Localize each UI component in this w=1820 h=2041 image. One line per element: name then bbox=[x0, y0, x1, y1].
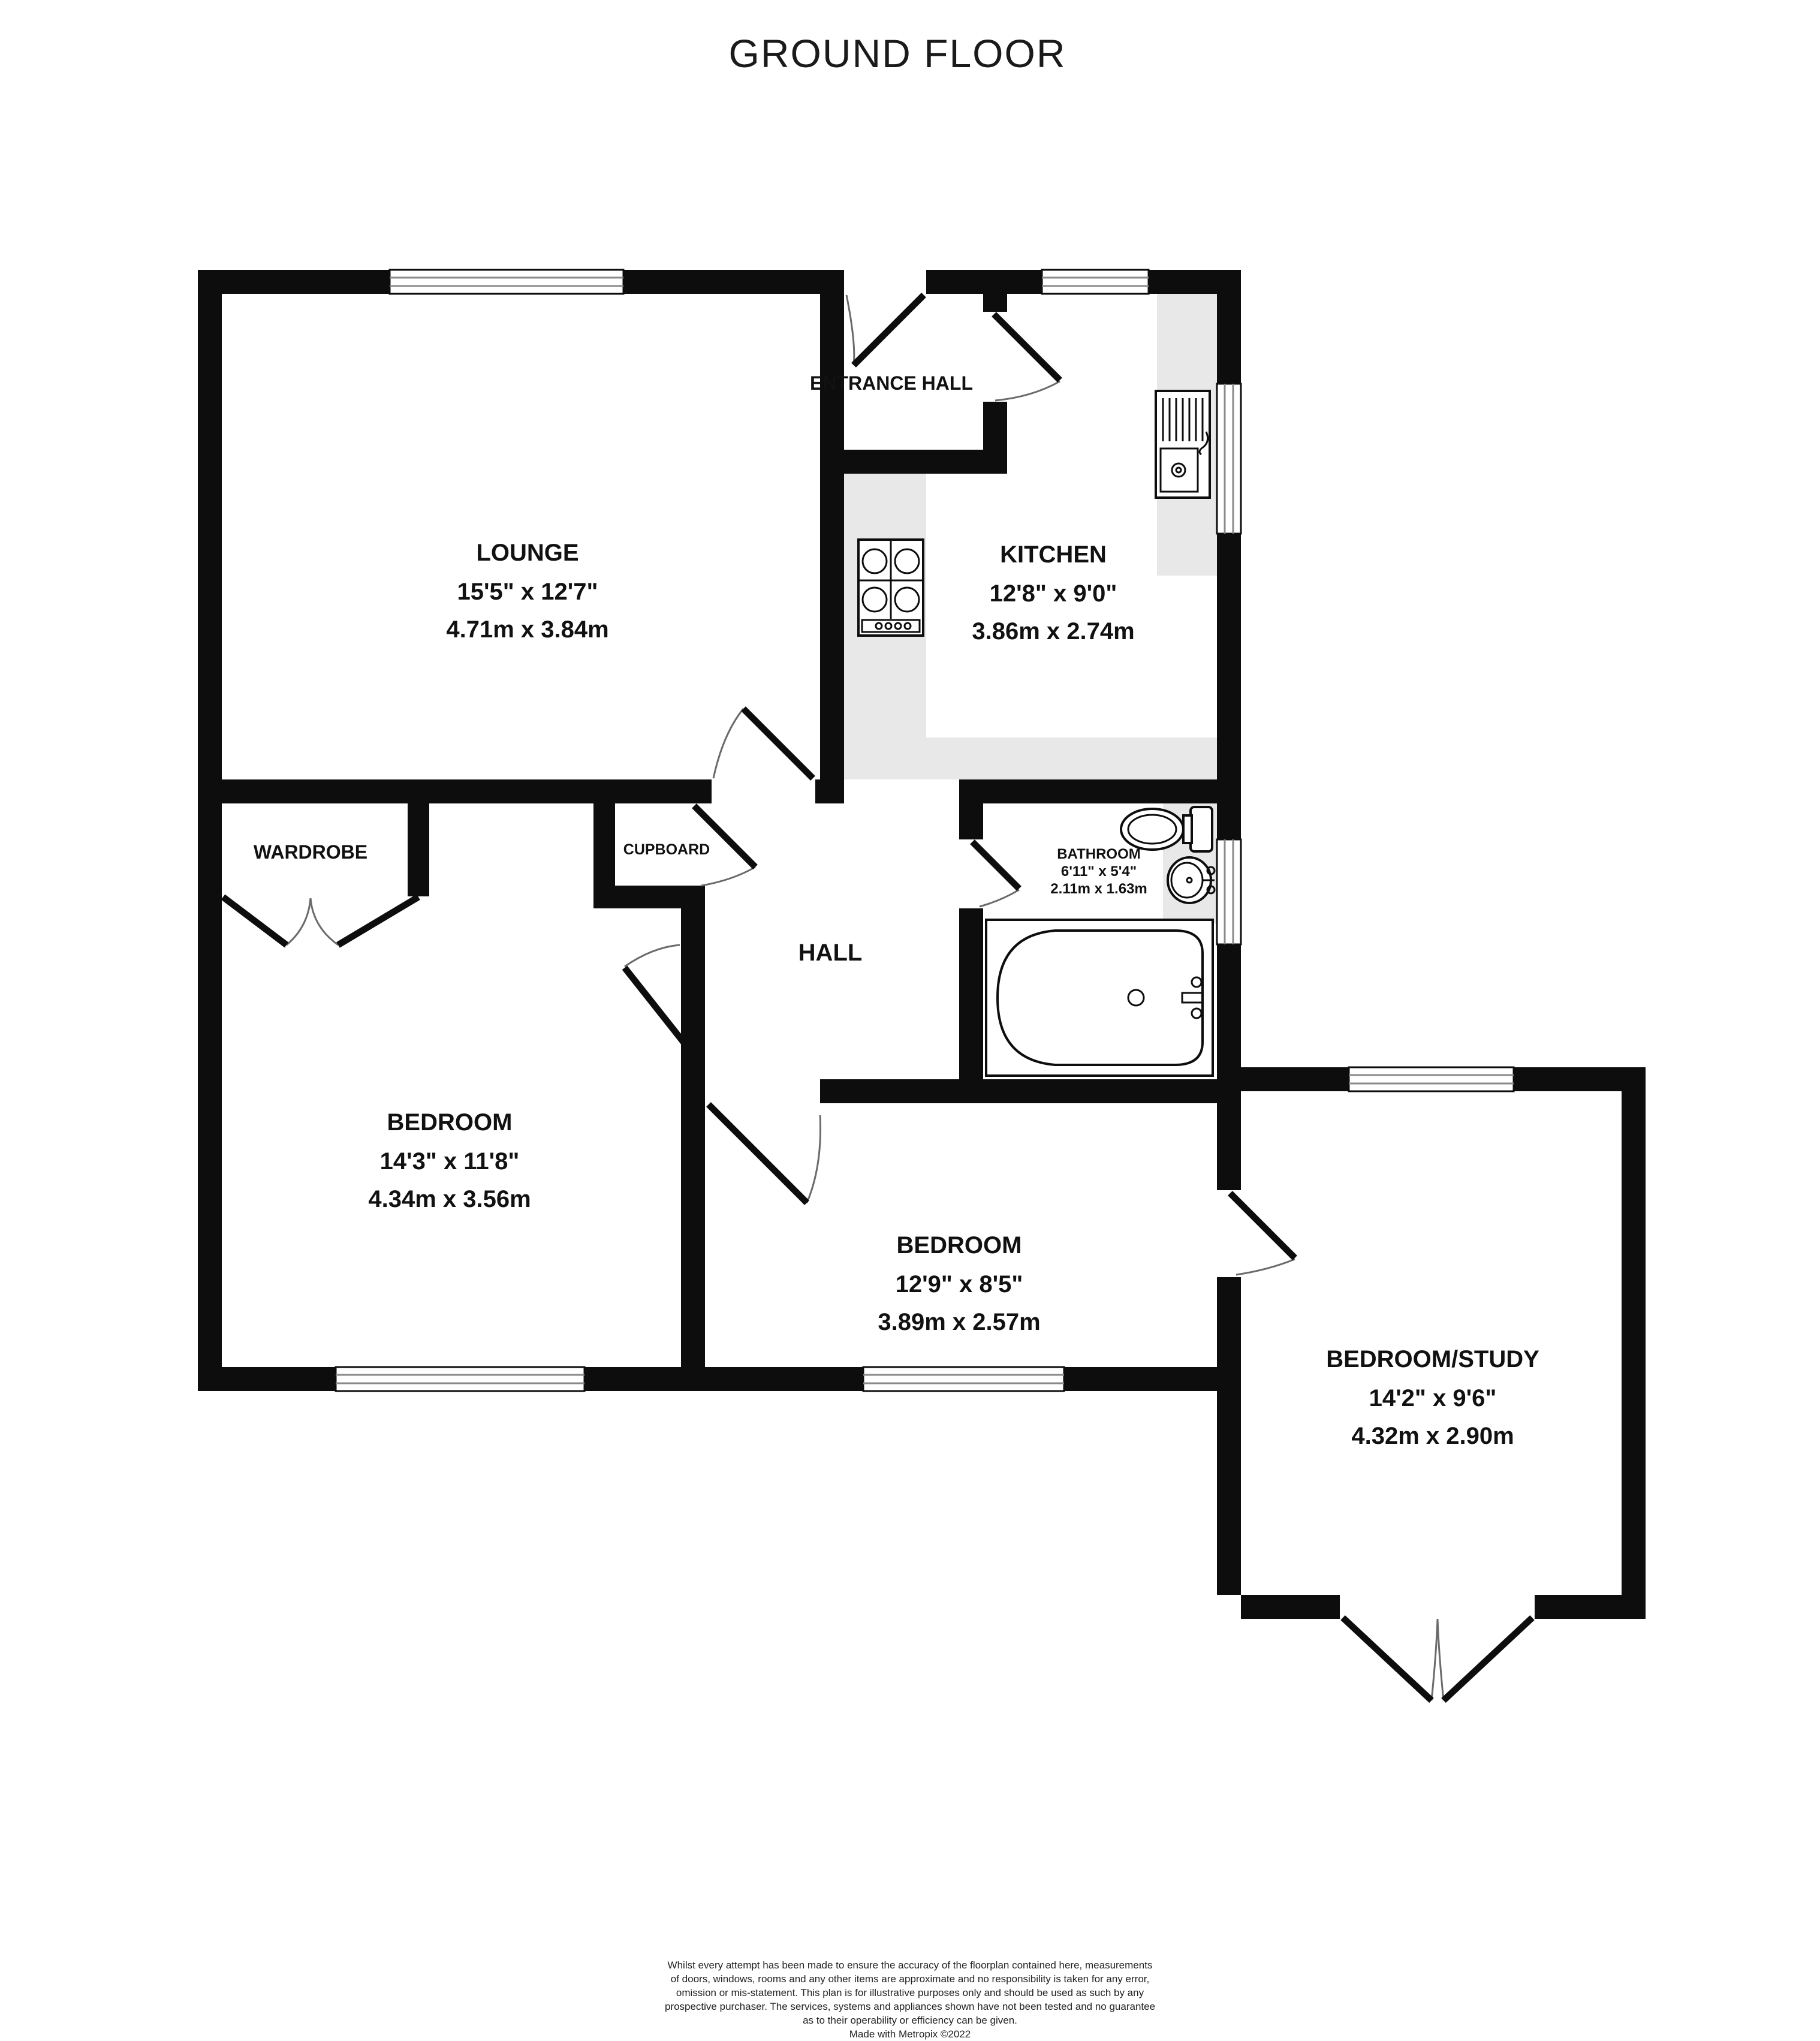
wall bbox=[959, 803, 983, 839]
wall bbox=[1217, 1391, 1241, 1595]
wall bbox=[198, 270, 390, 294]
wall bbox=[820, 1079, 1241, 1103]
kitchen-sink bbox=[1156, 391, 1210, 498]
kitchen-top-window bbox=[1042, 270, 1149, 294]
wall bbox=[681, 886, 705, 1367]
disclaimer-line: of doors, windows, rooms and any other i… bbox=[671, 1973, 1149, 1985]
kitchen-dims-metric: 3.86m x 2.74m bbox=[972, 618, 1134, 645]
wall bbox=[1217, 944, 1241, 1190]
wall bbox=[408, 779, 429, 896]
wall bbox=[959, 779, 1241, 803]
wall bbox=[815, 779, 844, 803]
bedroom2-dims-imperial: 12'9" x 8'5" bbox=[896, 1271, 1023, 1298]
wall bbox=[198, 779, 712, 803]
bedroom2-name: BEDROOM bbox=[897, 1232, 1022, 1259]
study-name: BEDROOM/STUDY bbox=[1326, 1346, 1539, 1372]
disclaimer-line: Whilst every attempt has been made to en… bbox=[668, 1959, 1153, 1971]
metropix-credit: Made with Metropix ©2022 bbox=[849, 2028, 971, 2040]
wall bbox=[820, 450, 1007, 474]
wall bbox=[959, 908, 983, 1079]
bathroom-dims-metric: 2.11m x 1.63m bbox=[1050, 881, 1147, 897]
wall bbox=[983, 402, 1007, 450]
bathroom-dims-imperial: 6'11" x 5'4" bbox=[1061, 863, 1137, 880]
study-window bbox=[1349, 1067, 1514, 1091]
bedroom1-dims-metric: 4.34m x 3.56m bbox=[368, 1186, 531, 1212]
wall bbox=[593, 886, 683, 908]
counter-bottom-strip bbox=[844, 737, 1217, 779]
bathroom-label: BATHROOM 6'11" x 5'4" 2.11m x 1.63m bbox=[1050, 846, 1147, 897]
disclaimer-line: omission or mis-statement. This plan is … bbox=[676, 1987, 1144, 1998]
cupboard-label: CUPBOARD bbox=[623, 841, 710, 858]
wall bbox=[820, 294, 844, 797]
wall bbox=[584, 1367, 863, 1391]
wall bbox=[198, 270, 222, 1391]
bedroom1-window bbox=[336, 1367, 584, 1391]
entrance-hall-label: ENTRANCE HALL bbox=[810, 372, 973, 394]
bedroom1-name: BEDROOM bbox=[387, 1109, 513, 1136]
lounge-dims-metric: 4.71m x 3.84m bbox=[446, 616, 608, 643]
kitchen-name: KITCHEN bbox=[1000, 541, 1107, 568]
bedroom2-dims-metric: 3.89m x 2.57m bbox=[878, 1309, 1040, 1335]
kitchen-dims-imperial: 12'8" x 9'0" bbox=[990, 580, 1117, 607]
wall bbox=[983, 294, 1007, 312]
wall bbox=[1064, 1367, 1241, 1391]
disclaimer-line: as to their operability or efficiency ca… bbox=[803, 2015, 1017, 2026]
wall bbox=[623, 270, 844, 294]
hall-label: HALL bbox=[798, 940, 863, 966]
wall bbox=[1622, 1067, 1646, 1619]
lounge-name: LOUNGE bbox=[476, 540, 578, 566]
hob bbox=[858, 540, 923, 636]
bedroom1-dims-imperial: 14'3" x 11'8" bbox=[380, 1148, 520, 1175]
wall bbox=[1241, 1595, 1340, 1619]
toilet bbox=[1121, 807, 1212, 851]
bathroom-name: BATHROOM bbox=[1057, 846, 1141, 862]
bedroom2-window bbox=[863, 1367, 1064, 1391]
wall bbox=[198, 1367, 336, 1391]
wall bbox=[1535, 1595, 1646, 1619]
disclaimer-line: prospective purchaser. The services, sys… bbox=[665, 2001, 1155, 2012]
wall bbox=[1217, 270, 1241, 384]
bedroom1-label: BEDROOM 14'3" x 11'8" 4.34m x 3.56m bbox=[368, 1109, 531, 1212]
bathroom-window bbox=[1217, 839, 1241, 944]
floorplan: GROUND FLOOR bbox=[0, 0, 1820, 2041]
wardrobe-label: WARDROBE bbox=[254, 841, 367, 863]
wall bbox=[926, 270, 1042, 294]
lounge-window bbox=[390, 270, 623, 294]
lounge-dims-imperial: 15'5" x 12'7" bbox=[457, 579, 598, 605]
bedroom2-label: BEDROOM 12'9" x 8'5" 3.89m x 2.57m bbox=[878, 1232, 1040, 1335]
kitchen-right-window bbox=[1217, 384, 1241, 534]
bathtub bbox=[986, 920, 1213, 1076]
wall bbox=[1241, 1067, 1349, 1091]
page-title: GROUND FLOOR bbox=[728, 31, 1066, 76]
study-dims-imperial: 14'2" x 9'6" bbox=[1369, 1385, 1497, 1411]
study-dims-metric: 4.32m x 2.90m bbox=[1351, 1423, 1514, 1449]
